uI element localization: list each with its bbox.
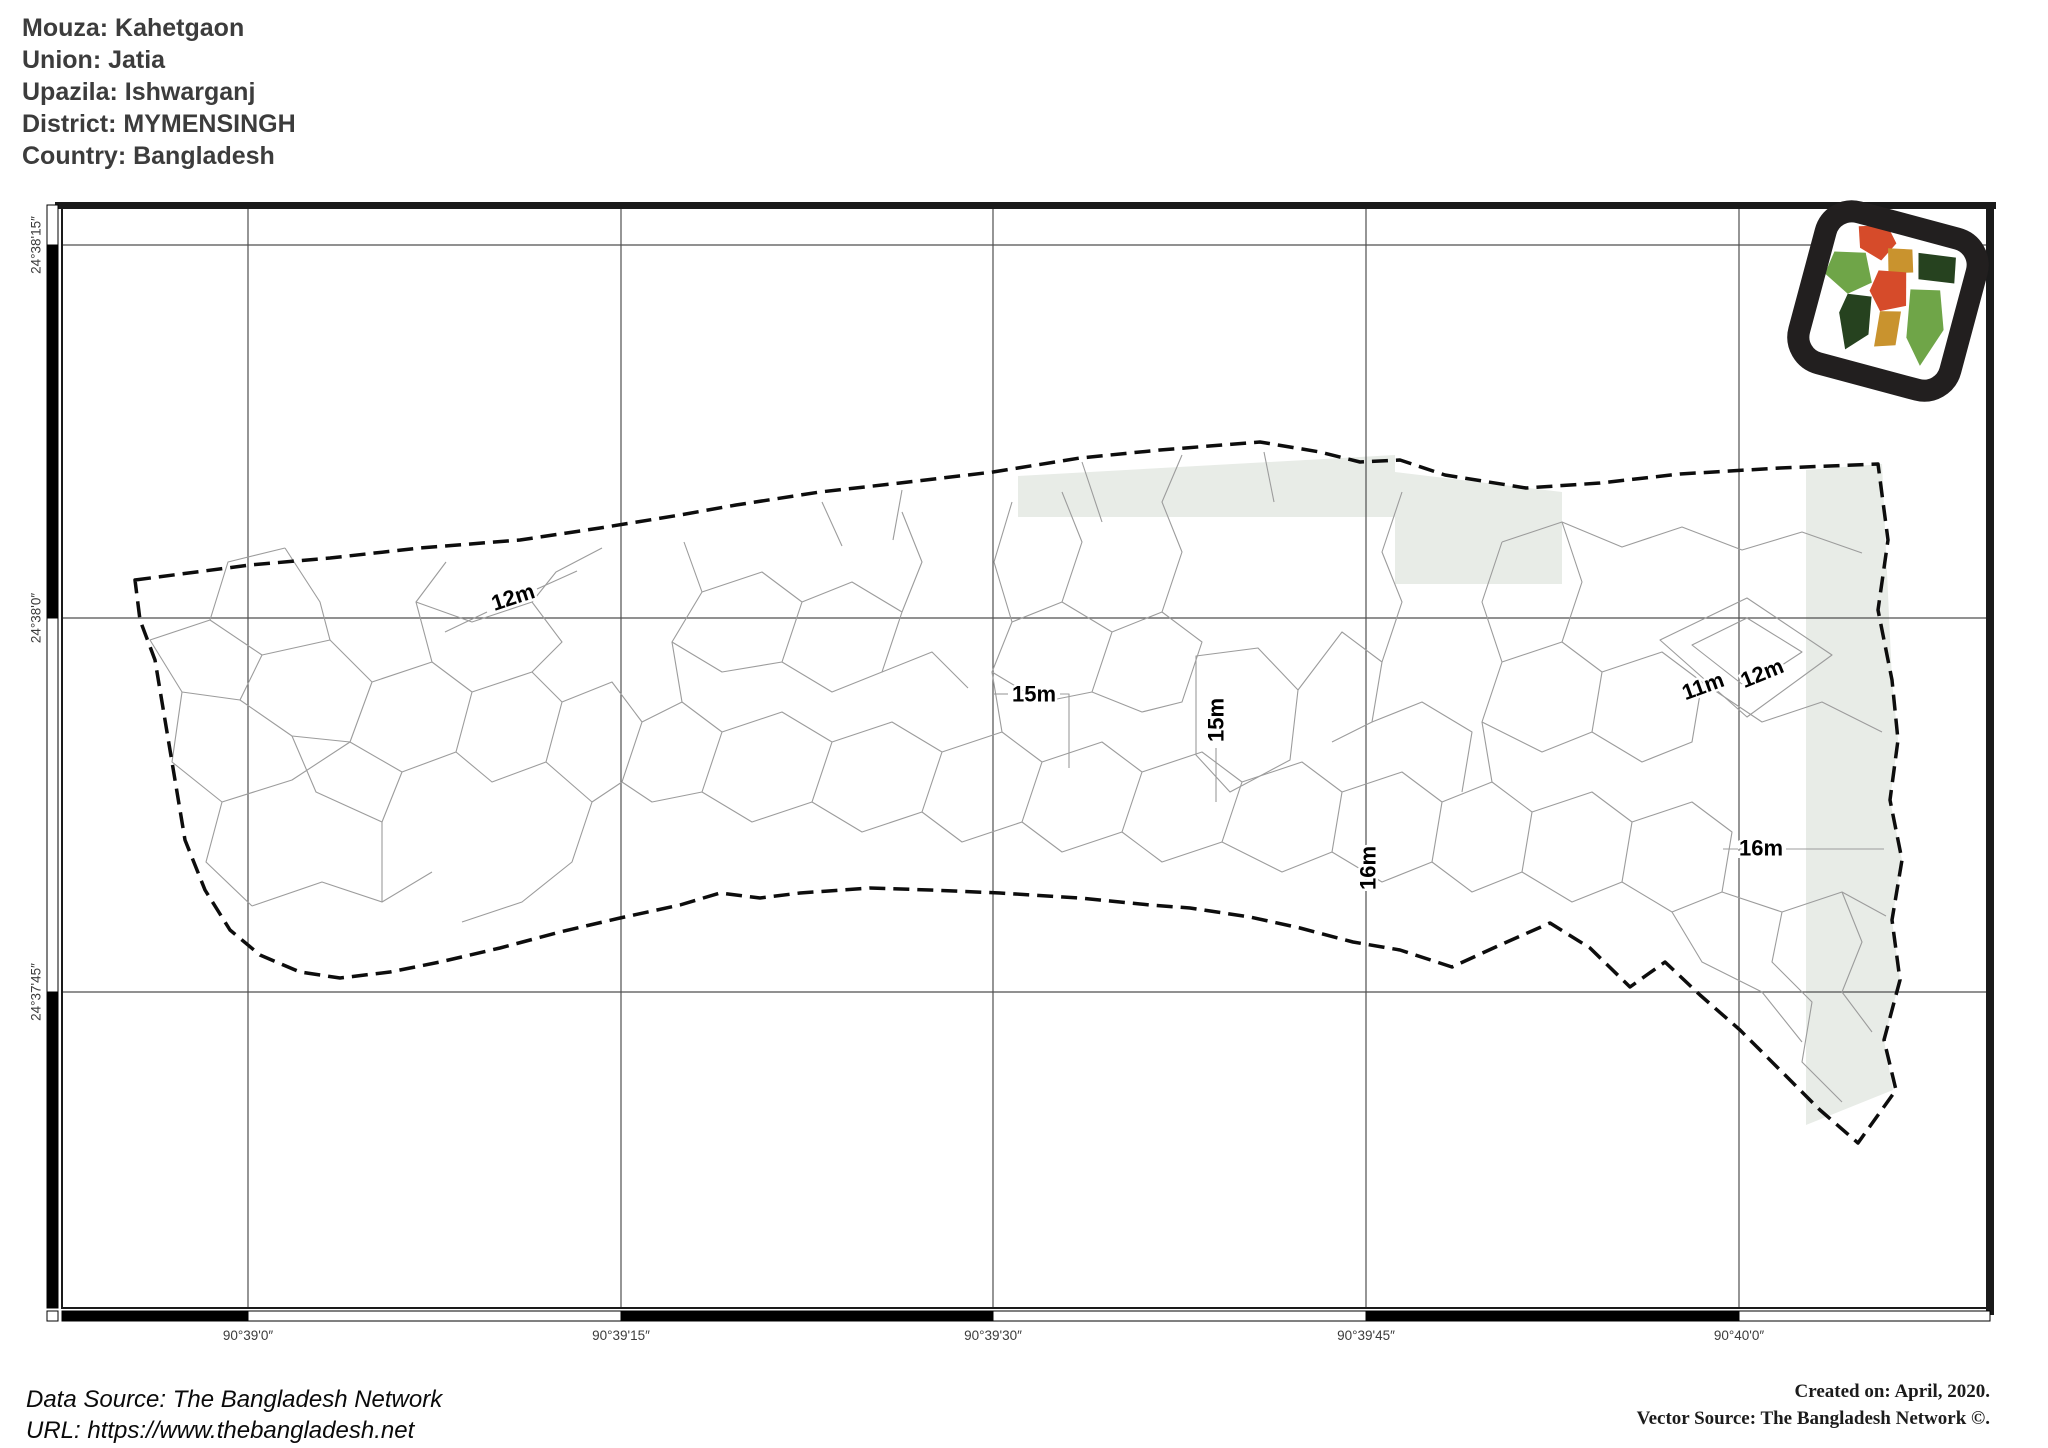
- data-source-line: Data Source: The Bangladesh Network: [26, 1384, 442, 1415]
- longitude-label: 90°39'15″: [592, 1328, 650, 1343]
- contour-elevation-label: 11m: [1679, 667, 1728, 705]
- longitude-label: 90°39'0″: [223, 1328, 274, 1343]
- latitude-label: 24°37'45″: [29, 963, 44, 1021]
- map-canvas: 24°38'15″24°38'0″24°37'45″90°39'0″90°39'…: [0, 0, 2048, 1448]
- grid-lines: [62, 205, 1990, 1308]
- mouza-boundary: [135, 442, 1902, 1143]
- neatline-border: [47, 202, 1996, 1321]
- contour-elevation-label: 15m: [1204, 698, 1229, 742]
- contour-elevation-label: 12m: [488, 578, 538, 615]
- vector-source-line: Vector Source: The Bangladesh Network ©.: [1637, 1405, 1990, 1432]
- bangladesh-map-logo: [1792, 205, 1984, 397]
- shaded-areas: [1018, 455, 1902, 1125]
- credits-block: Created on: April, 2020. Vector Source: …: [1637, 1378, 1990, 1432]
- contour-elevation-label: 16m: [1739, 836, 1783, 861]
- contour-elevation-label: 12m: [1737, 653, 1787, 693]
- longitude-label: 90°40'0″: [1714, 1328, 1765, 1343]
- contour-elevation-label: 16m: [1356, 846, 1381, 890]
- longitude-label: 90°39'30″: [964, 1328, 1022, 1343]
- graticule-labels: 24°38'15″24°38'0″24°37'45″90°39'0″90°39'…: [29, 216, 1765, 1343]
- longitude-label: 90°39'45″: [1337, 1328, 1395, 1343]
- created-on-line: Created on: April, 2020.: [1637, 1378, 1990, 1405]
- latitude-label: 24°38'15″: [29, 216, 44, 274]
- url-line: URL: https://www.thebangladesh.net: [26, 1415, 442, 1446]
- data-source-block: Data Source: The Bangladesh Network URL:…: [26, 1384, 442, 1446]
- contour-elevation-label: 15m: [1012, 682, 1056, 707]
- latitude-label: 24°38'0″: [29, 593, 44, 644]
